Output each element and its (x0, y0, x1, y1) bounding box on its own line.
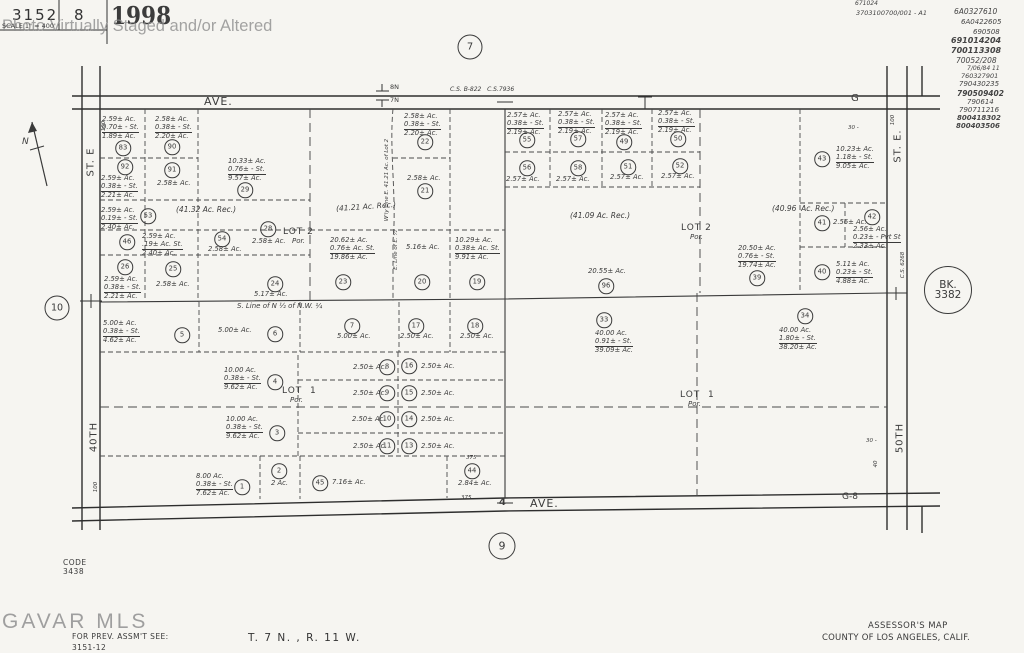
lot1-left-por: Por. (290, 397, 303, 405)
parcel-19-circle: 19 (469, 274, 485, 290)
parcel-11-acreage: 2.50± Ac. (353, 443, 387, 451)
record-10: 790430235 (959, 81, 999, 89)
parcel-91-acreage: 2.58± Ac. (157, 180, 191, 188)
section-corner-4: 4 (499, 497, 506, 508)
parcel-13-acreage: 2.50± Ac. (421, 443, 455, 451)
record-7: 70052/208 (956, 57, 997, 65)
section-ref-7: 7 (458, 35, 483, 60)
area-rec-4096: (40.96 Ac. Rec.) (772, 205, 834, 213)
parcel-40-circle: 40 (814, 264, 830, 280)
dim-100-top-right: 100 (890, 115, 896, 126)
parcel-83-circle: 83 (115, 140, 131, 156)
parcel-39-acreage: 20.50± Ac.0.76± - St.19.74± Ac. (738, 245, 776, 270)
scale-note: SCALE 1" = 400' (2, 22, 56, 30)
parcel-2-circle: 2 (271, 463, 287, 479)
parcel-58-acreage: 2.57± Ac. (556, 176, 590, 184)
parcel-53-acreage: 2.59± Ac.0.19± - St.2.40± Ac. (101, 207, 138, 232)
parcel-14-acreage: 2.50± Ac. (421, 416, 455, 424)
s-line-nw-quarter: S. Line of N ½ of N.W. ¼ (237, 303, 322, 311)
parcel-26-acreage: 2.59± Ac.0.38± - St.2.21± Ac. (104, 276, 141, 301)
parcel-10-acreage: 2.50± Ac. (352, 416, 386, 424)
parcel-20-circle: 20 (414, 274, 430, 290)
parcel-4-acreage: 10.00 Ac.0.38± - St.9.62± Ac. (224, 367, 261, 392)
parcel-16-acreage: 2.50± Ac. (421, 363, 455, 371)
record-5: 691014204 (951, 37, 1001, 46)
parcel-6-circle: 6 (267, 326, 283, 342)
parcel-5-circle: 5 (174, 327, 190, 343)
parcel-53-circle: 53 (140, 208, 156, 224)
parcel-91-circle: 91 (164, 162, 180, 178)
parcel-52-acreage: 2.57± Ac. (661, 173, 695, 181)
parcel-21-circle: 21 (417, 183, 433, 199)
parcel-25-acreage: 2.58± Ac. (156, 281, 190, 289)
parcel-23-acreage: 20.62± Ac.0.76± Ac. St.19.86± Ac. (330, 237, 375, 262)
record-0: 671024 (855, 1, 878, 8)
parcel-13-circle: 13 (401, 438, 417, 454)
parcel-9-acreage: 2.50± Ac. (353, 390, 387, 398)
parcel-3-acreage: 10.00 Ac.0.38± - St.9.62± Ac. (226, 416, 263, 441)
parcel-24-acreage: 5.17± Ac. (254, 291, 288, 299)
parcel-1-circle: 1 (234, 479, 250, 495)
parcel-17-acreage: 2.50± Ac. (400, 333, 434, 341)
parcel-15-acreage: 2.50± Ac. (421, 390, 455, 398)
township-8n: 8N (390, 84, 399, 91)
cs-ref-top: C.S. B-822 C.S.7936 (450, 87, 514, 94)
parcel-44-circle: 44 (464, 463, 480, 479)
parcel-46-circle: 46 (119, 234, 135, 250)
parcel-56-circle: 56 (519, 160, 535, 176)
st-50th-label: 50TH (895, 423, 906, 453)
record-15: 800403506 (956, 123, 1000, 131)
book-ref-3382: BK.3382 (924, 266, 972, 314)
dim-375-bottom: 375 (461, 495, 472, 501)
parcel-54-acreage: 2.58± Ac. (208, 246, 242, 254)
record-11: 790509402 (957, 90, 1004, 98)
record-1: 3703100700/001 - A1 (856, 10, 927, 17)
w-line-note: W'ly Line E. 41.21 Ac. of Lot 2 (384, 139, 390, 221)
parcel-96-circle: 96 (598, 278, 614, 294)
assessors-map-title: ASSESSOR'S MAP (868, 621, 948, 631)
parcel-18-acreage: 2.50± Ac. (460, 333, 494, 341)
prev-assessment-ref: 3151-12 (72, 643, 106, 652)
dim-30-bottom-right: 30 - (866, 438, 877, 444)
parcel-90-circle: 90 (164, 139, 180, 155)
parcel-58-circle: 58 (570, 160, 586, 176)
parcel-26-circle: 26 (117, 259, 133, 275)
parcel-8-acreage: 2.50± Ac. (353, 364, 387, 372)
lot1-right-por: Por. (688, 401, 701, 409)
parcel-55-acreage: 2.57± Ac.0.38± - St.2.19± Ac. (507, 112, 544, 137)
code-value: 3438 (63, 567, 84, 576)
parcel-49-acreage: 2.57± Ac.0.38± - St.2.19± Ac. (605, 112, 642, 137)
parcel-20-acreage: 5.16± Ac. (406, 244, 440, 252)
parcel-90-acreage: 2.58± Ac.0.38± - St.2.20± Ac. (155, 116, 192, 141)
prev-assessment-label: FOR PREV. ASSM'T SEE: (72, 632, 169, 641)
record-2: 6A0327610 (954, 8, 997, 16)
parcel-14-circle: 14 (401, 411, 417, 427)
section-lines (100, 109, 887, 498)
parcel-42-circle: 42 (864, 209, 880, 225)
ave-bottom-label: AVE. (530, 498, 559, 510)
ave-top-label: AVE. (204, 96, 233, 108)
parcel-96-acreage: 20.55± Ac. (588, 268, 626, 276)
section-ref-10: 10 (45, 296, 70, 321)
parcel-22-acreage: 2.58± Ac.0.38± - St.2.20± Ac. (404, 113, 441, 138)
township-7n: 7N (390, 97, 399, 104)
north-arrow (28, 122, 47, 186)
parcel-23-circle: 23 (335, 274, 351, 290)
parcel-34-acreage: 40.00 Ac.1.80± - St.38.20± Ac. (779, 327, 817, 352)
g-road-label: G (851, 93, 859, 104)
parcel-7-acreage: 5.00± Ac. (337, 333, 371, 341)
parcel-25-circle: 25 (165, 261, 181, 277)
parcel-41-circle: 41 (814, 215, 830, 231)
gavar-watermark: GAVAR MLS (2, 610, 148, 634)
dim-100-bottom-left: 100 (93, 482, 99, 493)
parcel-28-acreage: 2.58± Ac. (252, 238, 286, 246)
parcel-45-circle: 45 (312, 475, 328, 491)
parcel-83-acreage: 2.59± Ac.0.70± - St.1.89± Ac. (102, 116, 139, 141)
parcel-92-circle: 92 (117, 159, 133, 175)
parcel-21-acreage: 2.58± Ac. (407, 175, 441, 183)
area-rec-4132: (41.32 Ac. Rec.) (176, 206, 236, 214)
parcel-1-acreage: 8.00 Ac.0.38± - St.7.62± Ac. (196, 473, 233, 498)
g8-road-label: G-8 (842, 493, 858, 503)
parcel-56-acreage: 2.57± Ac. (506, 176, 540, 184)
record-6: 700113308 (951, 47, 1001, 56)
parcel-57-acreage: 2.57± Ac.0.38± - St.2.19± Ac. (558, 111, 595, 136)
section-ref-9: 9 (489, 533, 516, 560)
parcel-46-acreage: 2.59± Ac..19± Ac. St.2.40± Ac. (142, 233, 183, 258)
parcel-44-acreage: 2.84± Ac. (458, 480, 492, 488)
parcel-33-acreage: 40.00 Ac.0.91± - St.39.09± Ac. (595, 330, 633, 355)
north-letter: N (22, 138, 29, 148)
area-rec-4109: (41.09 Ac. Rec.) (570, 212, 630, 220)
parcel-4-circle: 4 (267, 374, 283, 390)
dim-30-top-right: 30 - (848, 125, 859, 131)
dim-40-bottom-right: 40 (873, 461, 879, 468)
parcel-39-circle: 39 (749, 270, 765, 286)
parcel-92-acreage: 2.59± Ac.0.38± - St.2.21± Ac. (101, 175, 138, 200)
parcel-43-acreage: 10.23± Ac.1.18± - St.9.05± Ac. (836, 146, 874, 171)
code-label: CODE (63, 558, 87, 567)
parcel-19-acreage: 10.29± Ac.0.38± Ac. St.9.91± Ac. (455, 237, 500, 262)
township-range: T. 7 N. , R. 11 W. (248, 632, 361, 644)
parcel-51-acreage: 2.57± Ac. (610, 174, 644, 182)
parcel-boundaries (100, 109, 887, 499)
parcel-34-circle: 34 (797, 308, 813, 324)
county-name: COUNTY OF LOS ANGELES, CALIF. (822, 633, 970, 643)
dim-375-top: 375 (466, 455, 477, 461)
parcel-29-acreage: 10.33± Ac.0.76± - St.9.57± Ac. (228, 158, 266, 183)
survey-ticks (80, 84, 907, 503)
parcel-6-acreage: 5.00± Ac. (218, 327, 252, 335)
parcel-2-acreage: 2 Ac. (271, 480, 288, 488)
parcel-28-circle: 28 (260, 221, 276, 237)
e-line-note: E. Line of E. ½ (393, 230, 399, 270)
parcel-45-acreage: 7.16± Ac. (332, 479, 366, 487)
parcel-29-circle: 29 (237, 182, 253, 198)
parcel-5-acreage: 5.00± Ac.0.38± - St.4.62± Ac. (103, 320, 140, 345)
cs-6268-label: C.S. 6268 (900, 252, 906, 279)
st-e-left-label: ST. E (86, 148, 97, 177)
lot2-right-por: Por. (690, 234, 703, 242)
parcel-43-circle: 43 (814, 151, 830, 167)
parcel-3-circle: 3 (269, 425, 285, 441)
parcel-15-circle: 15 (401, 385, 417, 401)
lot2-left-por: Por. (292, 238, 305, 246)
parcel-42-acreage: 2.56± Ac.0.23± - Pvt St2.33± Ac. (853, 226, 901, 251)
record-3: 6A0422605 (961, 19, 1001, 27)
assessor-map-page: 3152 8 1998 Photo Virtually Staged and/o… (0, 0, 1024, 653)
parcel-16-circle: 16 (401, 358, 417, 374)
st-e-right-label: ST. E. (893, 129, 904, 162)
st-40th-label: 40TH (89, 422, 100, 452)
parcel-50-acreage: 2.57± Ac.0.38± - St.2.19± Ac. (658, 110, 695, 135)
parcel-33-circle: 33 (596, 312, 612, 328)
parcel-40-acreage: 5.11± Ac.0.23± - St.4.88± Ac. (836, 261, 873, 286)
lot-boundaries (100, 109, 887, 496)
